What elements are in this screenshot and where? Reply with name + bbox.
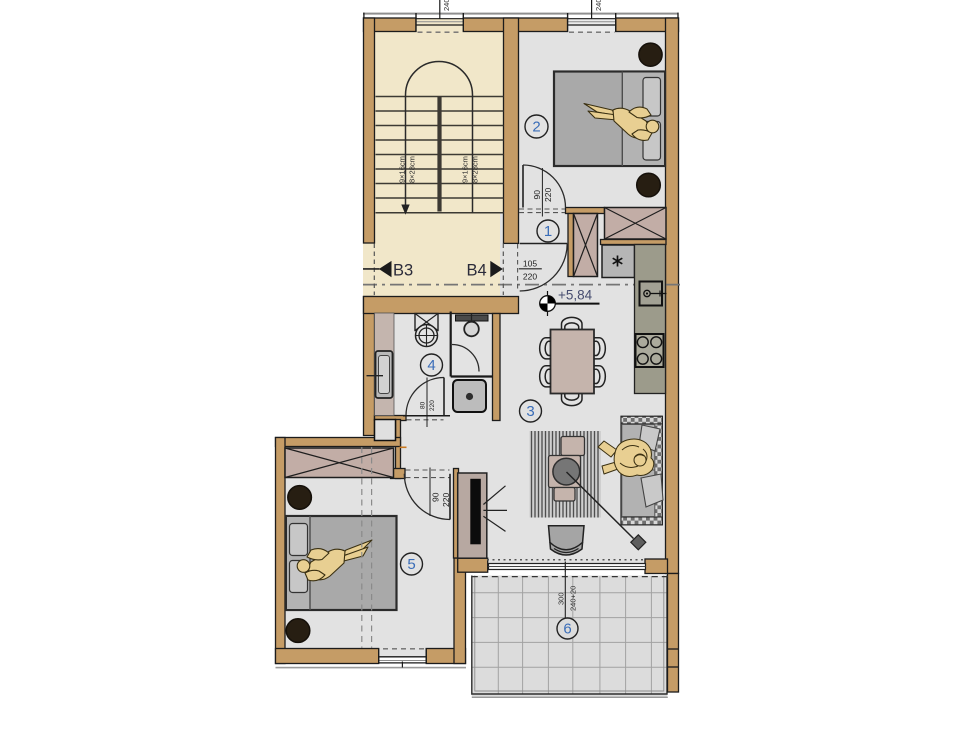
svg-text:5: 5 bbox=[407, 556, 415, 573]
svg-text:6: 6 bbox=[563, 621, 571, 638]
svg-text:9×16cm: 9×16cm bbox=[398, 156, 407, 183]
svg-text:90: 90 bbox=[431, 492, 441, 502]
svg-text:8×28cm: 8×28cm bbox=[471, 156, 480, 183]
svg-text:240+20: 240+20 bbox=[569, 586, 578, 611]
svg-text:+5,84: +5,84 bbox=[558, 288, 593, 303]
svg-text:220: 220 bbox=[523, 272, 537, 282]
svg-text:240: 240 bbox=[442, 0, 451, 11]
svg-text:220: 220 bbox=[429, 400, 436, 411]
svg-text:4: 4 bbox=[427, 357, 435, 374]
svg-text:1: 1 bbox=[544, 223, 552, 240]
svg-text:105: 105 bbox=[523, 259, 537, 269]
svg-text:80: 80 bbox=[420, 401, 427, 409]
svg-text:90: 90 bbox=[532, 190, 542, 200]
svg-text:3: 3 bbox=[526, 403, 534, 420]
svg-text:2: 2 bbox=[532, 119, 540, 136]
svg-text:220: 220 bbox=[543, 188, 553, 202]
svg-text:8×28cm: 8×28cm bbox=[408, 156, 417, 183]
svg-text:B4: B4 bbox=[467, 262, 487, 280]
svg-text:240: 240 bbox=[594, 0, 603, 11]
svg-text:B3: B3 bbox=[393, 262, 413, 280]
svg-text:300: 300 bbox=[557, 592, 566, 605]
svg-text:220: 220 bbox=[441, 493, 451, 507]
svg-text:9×16cm: 9×16cm bbox=[461, 156, 470, 183]
